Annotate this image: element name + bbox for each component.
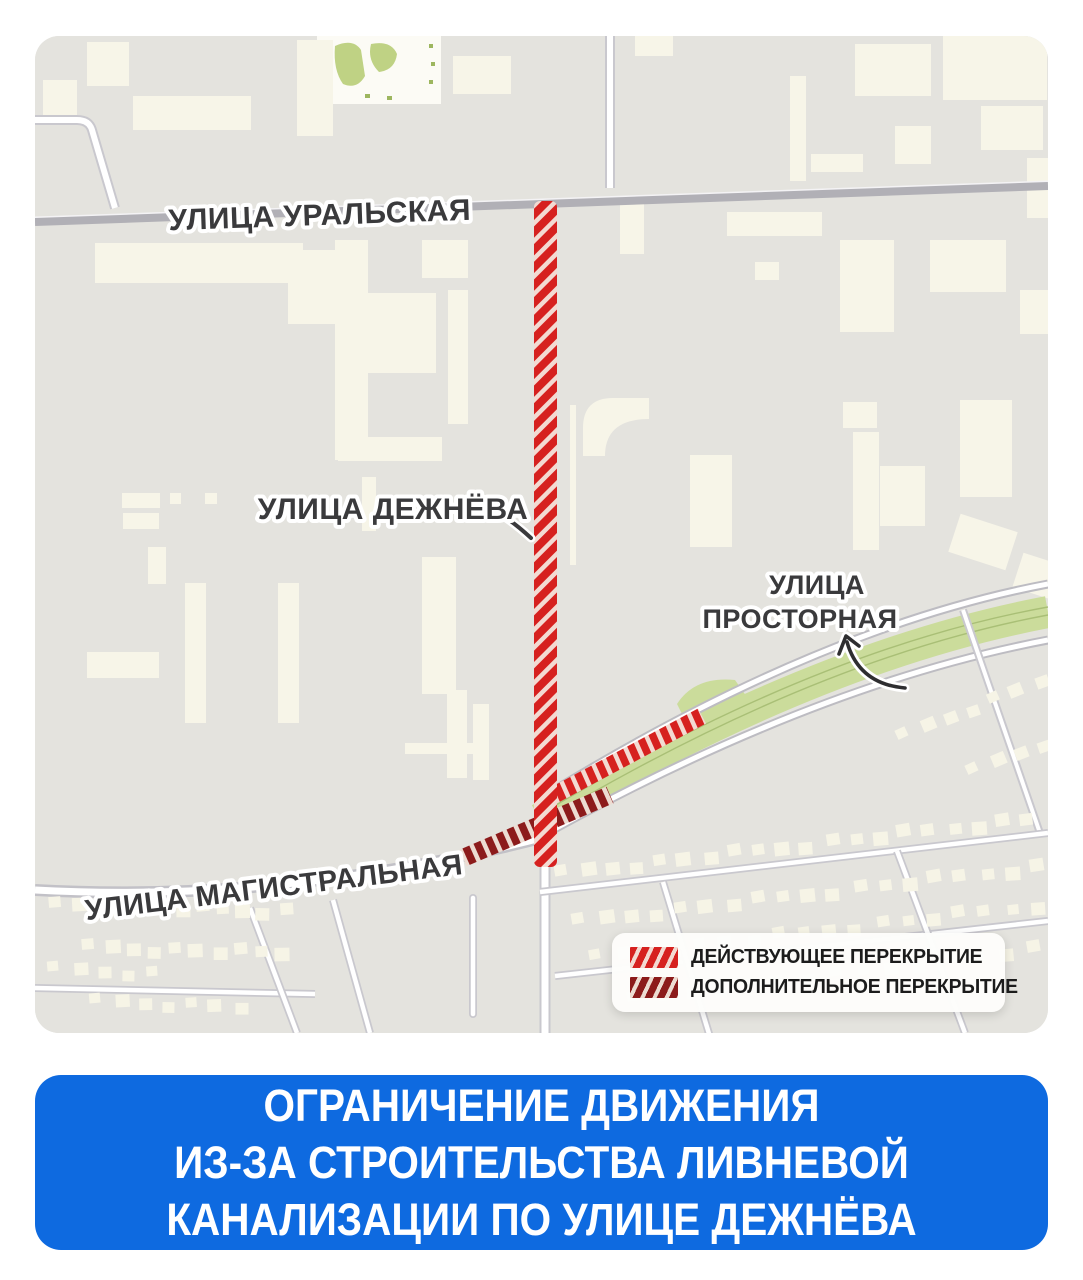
street-label-dezhnyova: УЛИЦА ДЕЖНЁВА	[258, 493, 529, 526]
banner-line-1: ОГРАНИЧЕНИЕ ДВИЖЕНИЯ	[86, 1077, 998, 1134]
park	[317, 36, 441, 104]
legend-label-additional: ДОПОЛНИТЕЛЬНОЕ ПЕРЕКРЫТИЕ	[691, 976, 1018, 999]
street-label-prostornaya-line2: ПРОСТОРНАЯ	[702, 604, 897, 634]
legend-item-additional: ДОПОЛНИТЕЛЬНОЕ ПЕРЕКРЫТИЕ	[630, 976, 1005, 999]
legend-label-active: ДЕЙСТВУЮЩЕЕ ПЕРЕКРЫТИЕ	[691, 946, 982, 969]
street-label-prostornaya-line1: УЛИЦА	[769, 570, 865, 600]
map-svg: УЛИЦА УРАЛЬСКАЯ УЛИЦА ДЕЖНЁВА УЛИЦА ПРОС…	[35, 36, 1048, 1033]
title-banner-text: ОГРАНИЧЕНИЕ ДВИЖЕНИЯ ИЗ-ЗА СТРОИТЕЛЬСТВА…	[86, 1077, 998, 1248]
banner-line-2: ИЗ-ЗА СТРОИТЕЛЬСТВА ЛИВНЕВОЙ	[86, 1134, 998, 1191]
additional-closure-swatch-icon	[630, 977, 678, 998]
map-legend: ДЕЙСТВУЮЩЕЕ ПЕРЕКРЫТИЕ ДОПОЛНИТЕЛЬНОЕ ПЕ…	[612, 933, 1005, 1012]
title-banner: ОГРАНИЧЕНИЕ ДВИЖЕНИЯ ИЗ-ЗА СТРОИТЕЛЬСТВА…	[35, 1075, 1048, 1250]
closure-bar-dezhnyova-active	[534, 201, 557, 867]
map-panel: УЛИЦА УРАЛЬСКАЯ УЛИЦА ДЕЖНЁВА УЛИЦА ПРОС…	[35, 36, 1048, 1033]
banner-line-3: КАНАЛИЗАЦИИ ПО УЛИЦЕ ДЕЖНЁВА	[86, 1191, 998, 1248]
legend-item-active: ДЕЙСТВУЮЩЕЕ ПЕРЕКРЫТИЕ	[630, 946, 1005, 969]
infographic: УЛИЦА УРАЛЬСКАЯ УЛИЦА ДЕЖНЁВА УЛИЦА ПРОС…	[0, 0, 1083, 1280]
active-closure-swatch-icon	[630, 947, 678, 968]
